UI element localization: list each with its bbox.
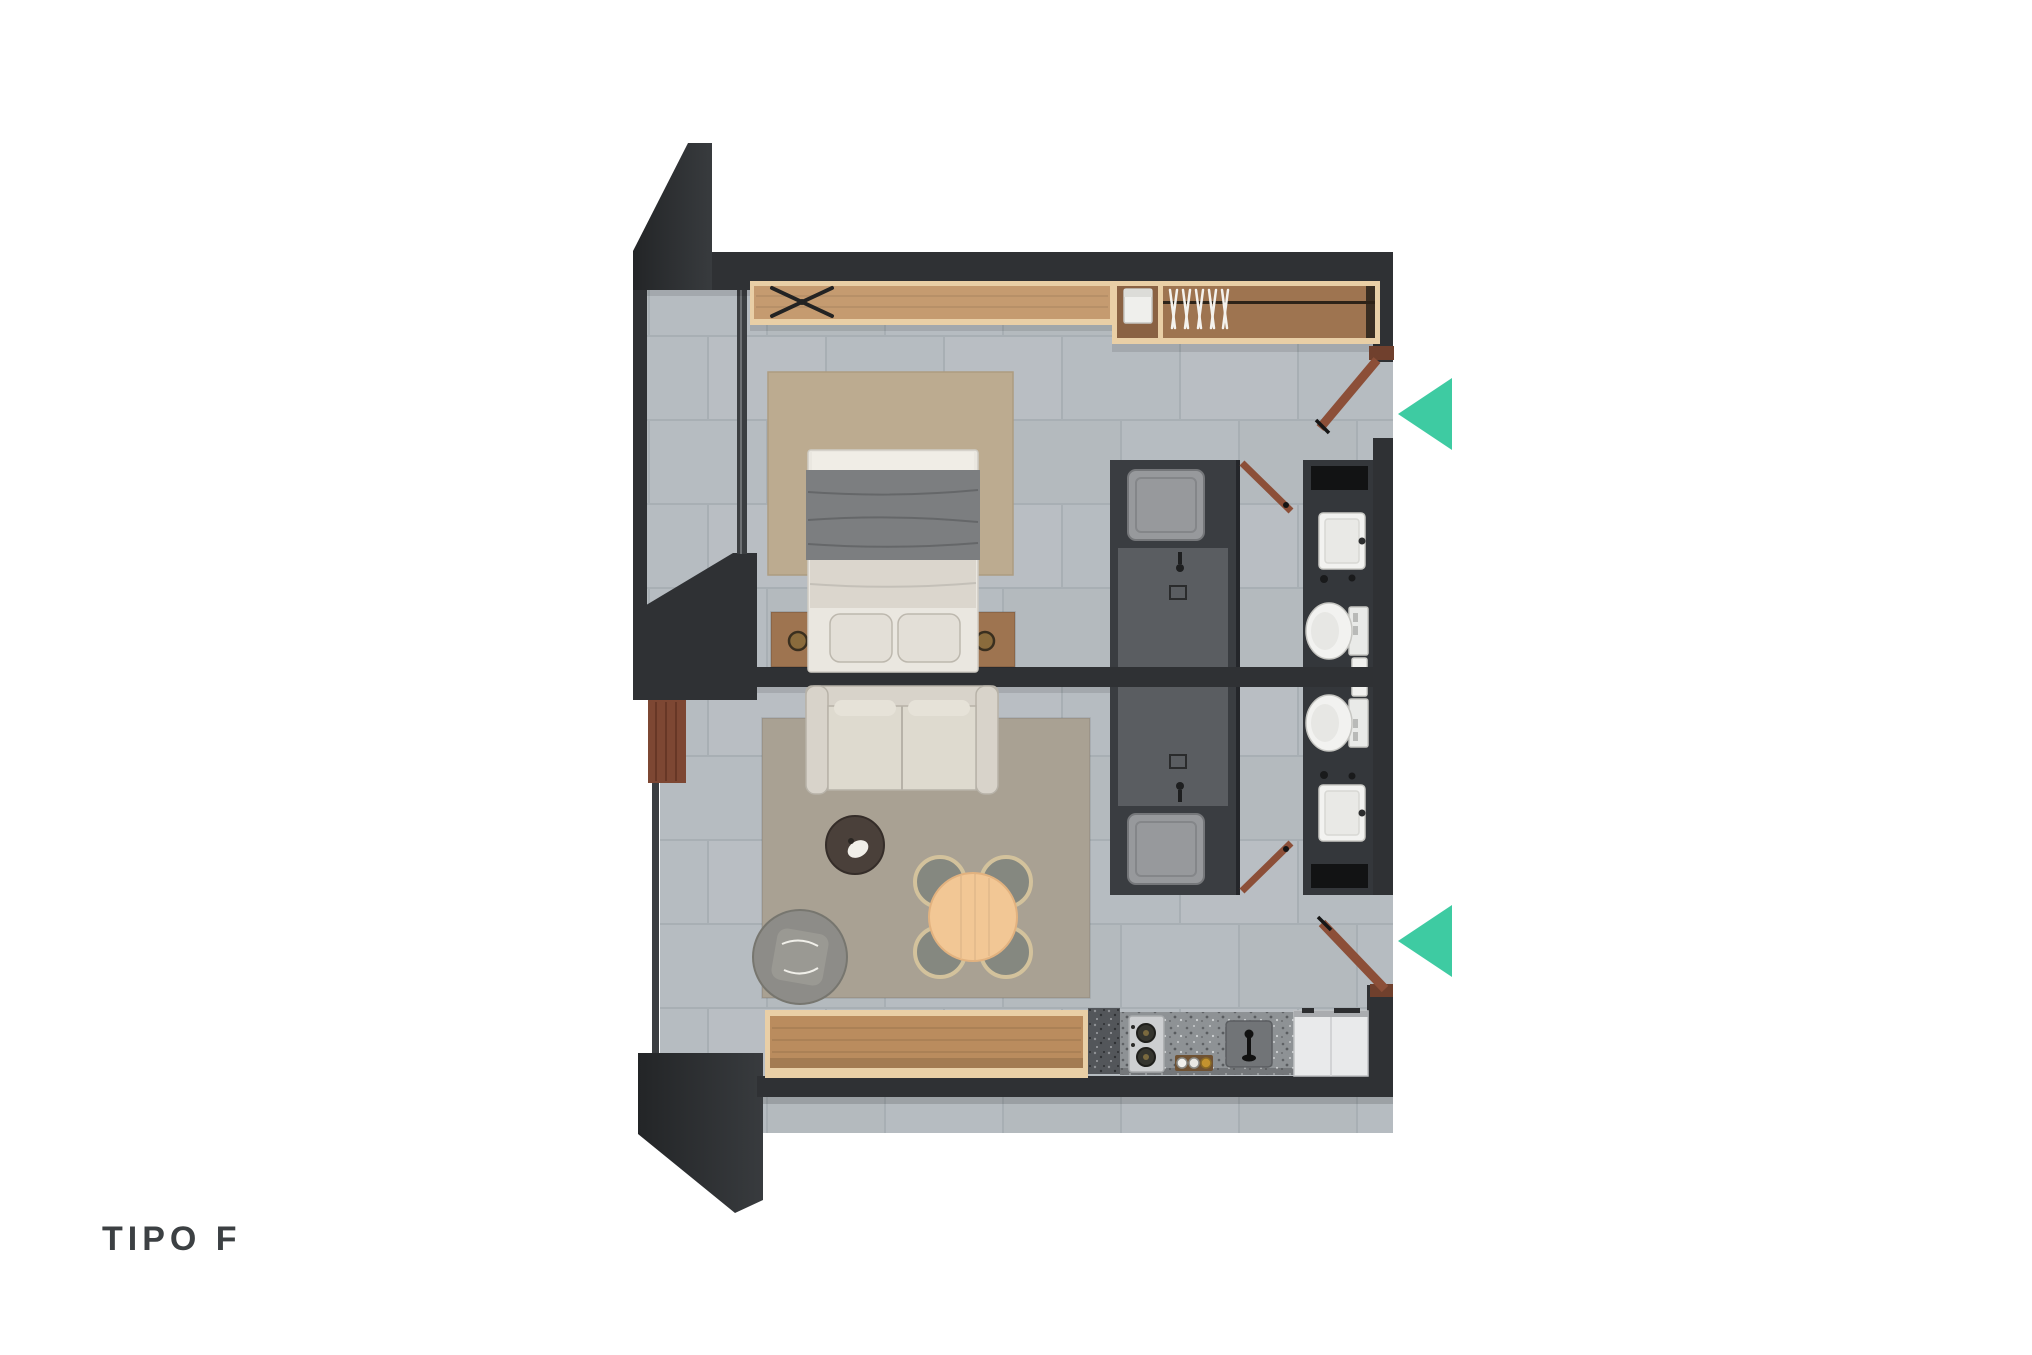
floor-plan-page: TIPO F (0, 0, 2032, 1355)
left-wall (633, 290, 647, 620)
dining-table (929, 873, 1017, 961)
top-left-column (633, 143, 712, 290)
bed (806, 450, 980, 672)
fridge (1294, 1008, 1368, 1076)
sideboard (765, 1010, 1088, 1078)
desk-shelf (750, 281, 1112, 331)
closet-rail (1163, 301, 1375, 304)
pillow (830, 614, 892, 662)
vanity-niche (1311, 466, 1368, 490)
living-window-frame (652, 783, 659, 1076)
entry-arrow-icon (1398, 905, 1452, 977)
bedside-lamp (789, 632, 807, 650)
closet-appliance (1124, 289, 1152, 323)
armchair (753, 910, 847, 1004)
pillow (898, 614, 960, 662)
floor-plan-rendering (0, 0, 2032, 1355)
bed-area (771, 450, 1015, 672)
dining-set (915, 857, 1031, 977)
entry-arrows (1398, 378, 1452, 977)
counter-end (1088, 1008, 1120, 1074)
bottom-left-column (638, 1053, 763, 1213)
closet (1112, 281, 1380, 352)
bathroom-divider-wall (1110, 667, 1393, 687)
bottom-wall (757, 1076, 1393, 1097)
kitchen-sink (1226, 1021, 1272, 1067)
spice-jars (1175, 1055, 1213, 1071)
cooktop (1129, 1016, 1164, 1072)
sink (1319, 513, 1366, 569)
kitchen-corner-wall (1367, 985, 1393, 1097)
plan-title: TIPO F (102, 1220, 242, 1259)
kitchen (765, 1008, 1368, 1078)
shower-tray (1128, 470, 1204, 540)
coffee-table (826, 816, 884, 874)
entry-arrow-icon (1398, 378, 1452, 450)
sofa (806, 686, 998, 794)
